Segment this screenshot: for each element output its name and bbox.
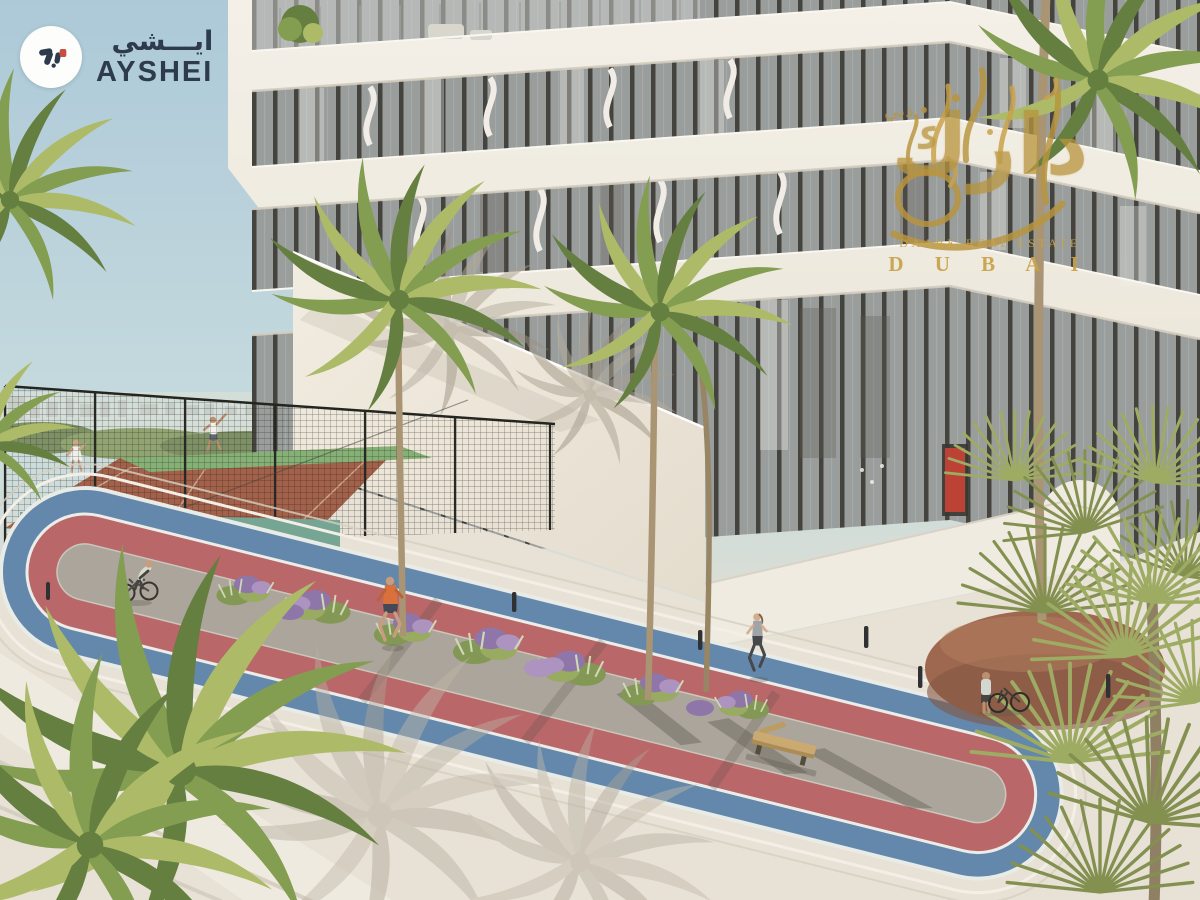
ayshei-arabic-text: ايـــشي xyxy=(96,28,213,55)
developer-city-text: D U B A I xyxy=(850,252,1130,277)
ayshei-logo-icon xyxy=(20,26,82,88)
lock-accent-icon xyxy=(60,49,67,57)
developer-name-text: DAARK REAL ESTATE xyxy=(850,236,1130,251)
ayshei-logo-mark-icon xyxy=(31,37,71,77)
render-image: ايـــشي AYSHEI دبي دارك DAARK REAL ESTAT… xyxy=(0,0,1200,900)
developer-watermark: دبي دارك DAARK REAL ESTATE D U B A I xyxy=(850,38,1130,288)
ayshei-watermark: ايـــشي AYSHEI xyxy=(20,26,213,88)
calligraphy-daark-arabic: دارك xyxy=(850,96,1130,194)
ayshei-latin-text: AYSHEI xyxy=(96,58,213,87)
